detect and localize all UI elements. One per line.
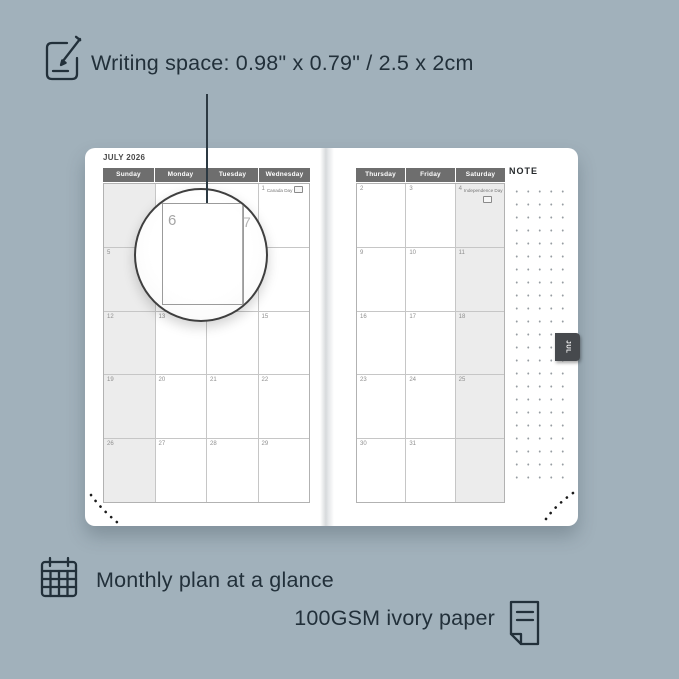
day-header-monday: Monday [155, 168, 206, 182]
day-cell: 9 [357, 248, 405, 311]
month-tab-jul: JUL [555, 333, 580, 361]
day-header-tuesday: Tuesday [207, 168, 258, 182]
day-cell-holiday: 1 Canada Day [259, 184, 310, 247]
stitch-dots-right [541, 489, 579, 525]
day-cell-holiday: 4 Independence Day [456, 184, 504, 247]
day-cell: 20 [156, 375, 207, 438]
day-cell [456, 439, 504, 502]
magnifier-circle: 6 7 [134, 188, 268, 322]
day-cell: 16 [357, 312, 405, 375]
note-title: NOTE [509, 166, 538, 176]
day-cell: 11 [456, 248, 504, 311]
day-header-row: Thursday Friday Saturday [356, 168, 505, 182]
product-feature-image: Writing space: 0.98" x 0.79" / 2.5 x 2cm… [0, 0, 679, 679]
day-cell: 15 [259, 312, 310, 375]
day-cell: 10 [406, 248, 454, 311]
calendar-grid-icon [37, 555, 81, 601]
stitch-dots-left [87, 491, 125, 529]
day-cell: 2 [357, 184, 405, 247]
day-cell: 30 [357, 439, 405, 502]
us-flag-icon [483, 196, 492, 203]
day-cell: 29 [259, 439, 310, 502]
day-cell: 17 [406, 312, 454, 375]
calendar-right-page: Thursday Friday Saturday 2 3 4 Independe… [356, 168, 505, 503]
holiday-label: Independence Day [464, 186, 503, 194]
day-cell: 22 [259, 375, 310, 438]
day-header-friday: Friday [406, 168, 455, 182]
day-cell: 27 [156, 439, 207, 502]
day-header-thursday: Thursday [356, 168, 405, 182]
day-cell: 25 [456, 375, 504, 438]
canada-flag-icon [294, 186, 303, 193]
holiday-label: Canada Day [267, 186, 293, 194]
day-header-sunday: Sunday [103, 168, 154, 182]
magnified-date: 6 [168, 212, 176, 229]
calendar-grid: 2 3 4 Independence Day 9 10 11 16 17 18 … [356, 183, 505, 503]
month-tab-label: JUL [564, 340, 570, 353]
day-cell: 23 [357, 375, 405, 438]
paper-sheet-icon [506, 597, 544, 649]
callout-pointer-line [206, 94, 208, 203]
day-cell: 31 [406, 439, 454, 502]
magnified-next-date: 7 [243, 214, 251, 230]
day-header-wednesday: Wednesday [259, 168, 310, 182]
day-header-saturday: Saturday [456, 168, 505, 182]
pencil-note-icon [40, 34, 84, 84]
paper-label: 100GSM ivory paper [240, 606, 495, 631]
book-spine [320, 148, 334, 526]
day-cell: 24 [406, 375, 454, 438]
writing-space-label: Writing space: 0.98" x 0.79" / 2.5 x 2cm [91, 51, 474, 76]
day-cell: 21 [207, 375, 258, 438]
holiday-date: 1 [262, 186, 265, 193]
month-title: JULY 2026 [103, 153, 145, 162]
holiday-date: 4 [459, 186, 462, 193]
day-cell: 12 [104, 312, 155, 375]
note-dot-row [545, 167, 569, 175]
day-cell: 19 [104, 375, 155, 438]
day-cell: 18 [456, 312, 504, 375]
day-cell: 28 [207, 439, 258, 502]
day-cell [207, 312, 258, 375]
day-cell: 3 [406, 184, 454, 247]
monthly-plan-label: Monthly plan at a glance [96, 568, 334, 593]
